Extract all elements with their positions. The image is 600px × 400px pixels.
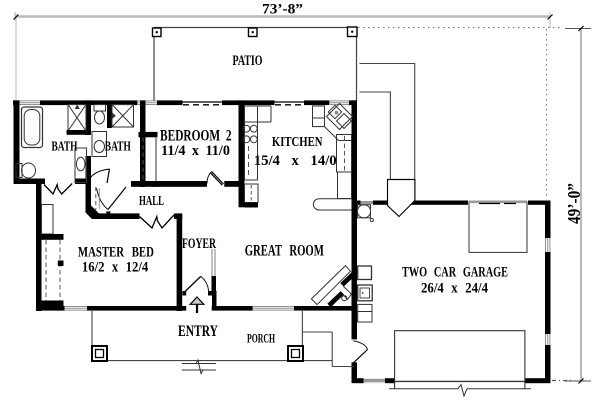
svg-text:BATH: BATH xyxy=(52,140,78,155)
svg-text:26/4 x 24/4: 26/4 x 24/4 xyxy=(421,281,488,297)
svg-text:KITCHEN: KITCHEN xyxy=(272,135,323,150)
svg-text:11/4 x 11/0: 11/4 x 11/0 xyxy=(161,143,230,159)
svg-text:16/2 x 12/4: 16/2 x 12/4 xyxy=(82,259,149,275)
svg-text:15/4 x 14/0: 15/4 x 14/0 xyxy=(254,153,337,169)
svg-text:FOYER: FOYER xyxy=(182,236,216,252)
svg-text:BATH: BATH xyxy=(105,140,131,155)
svg-text:MASTER BED: MASTER BED xyxy=(78,245,154,261)
svg-text:TWO CAR GARAGE: TWO CAR GARAGE xyxy=(402,265,508,281)
svg-text:GREAT ROOM: GREAT ROOM xyxy=(245,242,324,259)
svg-text:PATIO: PATIO xyxy=(233,53,263,69)
svg-text:ENTRY: ENTRY xyxy=(178,323,218,340)
svg-text:73’-8”: 73’-8” xyxy=(262,2,303,18)
svg-text:HALL: HALL xyxy=(139,194,164,209)
svg-text:PORCH: PORCH xyxy=(247,331,275,346)
